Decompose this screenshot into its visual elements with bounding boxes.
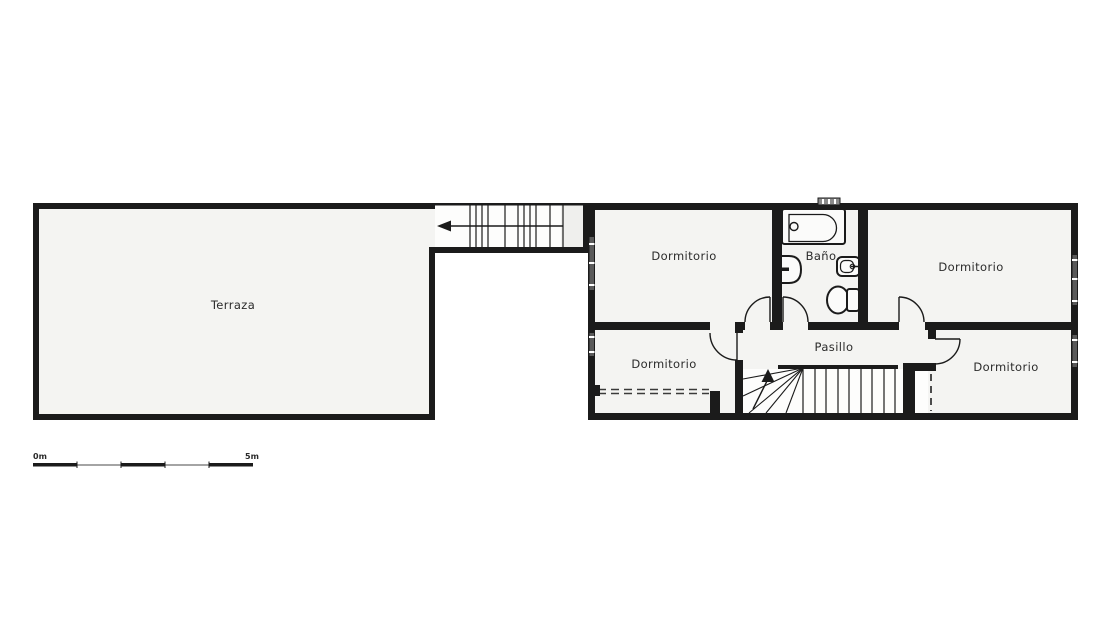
terraza-wall-left	[33, 203, 39, 420]
window-nw	[589, 237, 595, 290]
dormitorio-nw-label: Dormitorio	[651, 249, 716, 263]
upper-stair-landing	[561, 205, 583, 247]
closet-cap-wall	[915, 363, 936, 371]
terraza-label: Terraza	[210, 298, 255, 312]
bidet	[779, 256, 801, 283]
scale-start-label: 0m	[33, 452, 47, 461]
dormitorio-se-label: Dormitorio	[973, 360, 1038, 374]
dormitorio-ne-label: Dormitorio	[938, 260, 1003, 274]
terraza-wall-right	[429, 247, 435, 420]
dormitorio-sw-label: Dormitorio	[631, 357, 696, 371]
closet-stub-wall	[710, 391, 720, 413]
scale-end-label: 5m	[245, 452, 259, 461]
bathtub	[782, 209, 845, 244]
wall-nw-bath	[772, 210, 782, 322]
bano-label: Baño	[806, 249, 837, 263]
building-wall-left	[588, 203, 595, 420]
window-se	[1072, 335, 1078, 367]
wardrobe-left-stub	[595, 385, 600, 396]
floor-plan-page: Terraza Dormitorio Baño Dormitorio Dormi…	[0, 0, 1110, 626]
corridor-bottom-wall	[435, 247, 588, 253]
pasillo-label: Pasillo	[815, 340, 854, 354]
building-wall-right	[1071, 203, 1078, 420]
floors	[39, 205, 1071, 414]
wall-bath-ne	[858, 210, 868, 322]
corridor-top-edge	[435, 203, 588, 206]
floor-plan-drawing: Terraza Dormitorio Baño Dormitorio Dormi…	[0, 0, 1110, 626]
closet-strip-floor	[915, 371, 928, 413]
toilet	[827, 287, 859, 314]
terraza-wall-bottom	[33, 414, 435, 420]
scale-bar: 0m 5m	[33, 452, 259, 468]
terraza-wall-top	[33, 203, 435, 209]
stair-right-wall	[903, 363, 915, 413]
bathtub-drain-icon	[790, 223, 798, 231]
window-sw	[589, 333, 595, 356]
sink	[837, 257, 860, 276]
window-ne	[1072, 255, 1078, 305]
window-bathroom-small	[818, 198, 840, 205]
building-wall-bottom	[588, 413, 1078, 420]
